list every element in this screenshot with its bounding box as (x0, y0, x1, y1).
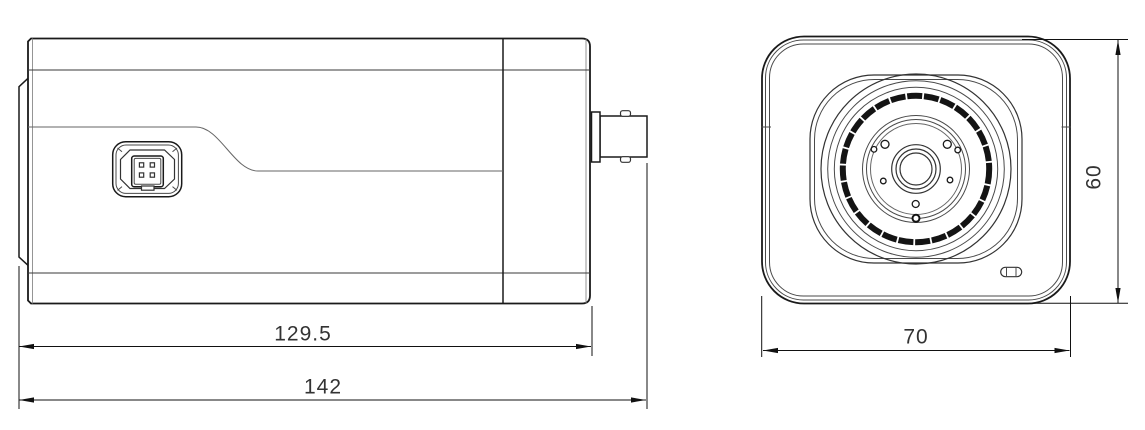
bnc-lug-top (621, 111, 631, 117)
lens-ring-mid (896, 149, 936, 189)
bnc-connector (592, 111, 648, 163)
arrow-down (1115, 288, 1120, 303)
arrow-right (1055, 348, 1070, 353)
front-view (762, 37, 1072, 304)
dim-front-height: 60 (1022, 40, 1128, 304)
dim-body-length-value: 129.5 (274, 323, 332, 346)
dimension-drawing: 129.5 142 (0, 0, 1145, 430)
lens-assembly (821, 74, 1011, 264)
bezel-circle-3 (834, 87, 997, 250)
bnc-barrel (600, 116, 647, 157)
connector-corner-tick-bl (118, 187, 123, 191)
bezel-circle-2 (828, 81, 1005, 258)
screw-hole-left (881, 178, 887, 184)
led-pill (1001, 267, 1022, 276)
side-connector (113, 142, 182, 197)
arrow-left (763, 348, 778, 353)
dim-front-width-value: 70 (903, 326, 928, 349)
lens-ring-outer (892, 145, 941, 194)
screw-hole-tl-large (881, 140, 889, 148)
screw-hole-tl-small (871, 147, 877, 153)
bezel-circle-1 (821, 74, 1011, 264)
arrow-up (1115, 40, 1120, 55)
side-view (19, 39, 647, 304)
side-seam-curve (28, 127, 503, 171)
arrow-right (576, 344, 591, 349)
bnc-lug-bottom (621, 157, 631, 163)
arrow-left (19, 344, 34, 349)
bnc-flange (592, 112, 601, 162)
led-indicator (1001, 267, 1022, 276)
connector-corner-tick-tr (173, 148, 178, 152)
screw-hole-right (947, 177, 953, 183)
screw-hole-tr-small (955, 147, 961, 153)
rear-plate (19, 78, 28, 265)
connector-notch (142, 186, 155, 190)
connector-corner-tick-tl (118, 148, 123, 152)
arrow-right (631, 397, 646, 402)
screw-hole-bottom-upper (912, 201, 919, 208)
dim-total-length: 142 (19, 163, 647, 409)
dim-total-length-value: 142 (304, 376, 342, 399)
screw-hole-bottom-lower (913, 215, 920, 222)
arrow-left (19, 397, 34, 402)
connector-socket (132, 156, 164, 187)
connector-corner-tick-br (173, 187, 178, 191)
screw-hole-tr-large (943, 140, 951, 148)
lens-aperture (900, 153, 932, 185)
dim-front-height-value: 60 (1083, 164, 1106, 189)
drawing-canvas: 129.5 142 (0, 0, 1145, 430)
dim-front-width: 70 (762, 296, 1071, 357)
